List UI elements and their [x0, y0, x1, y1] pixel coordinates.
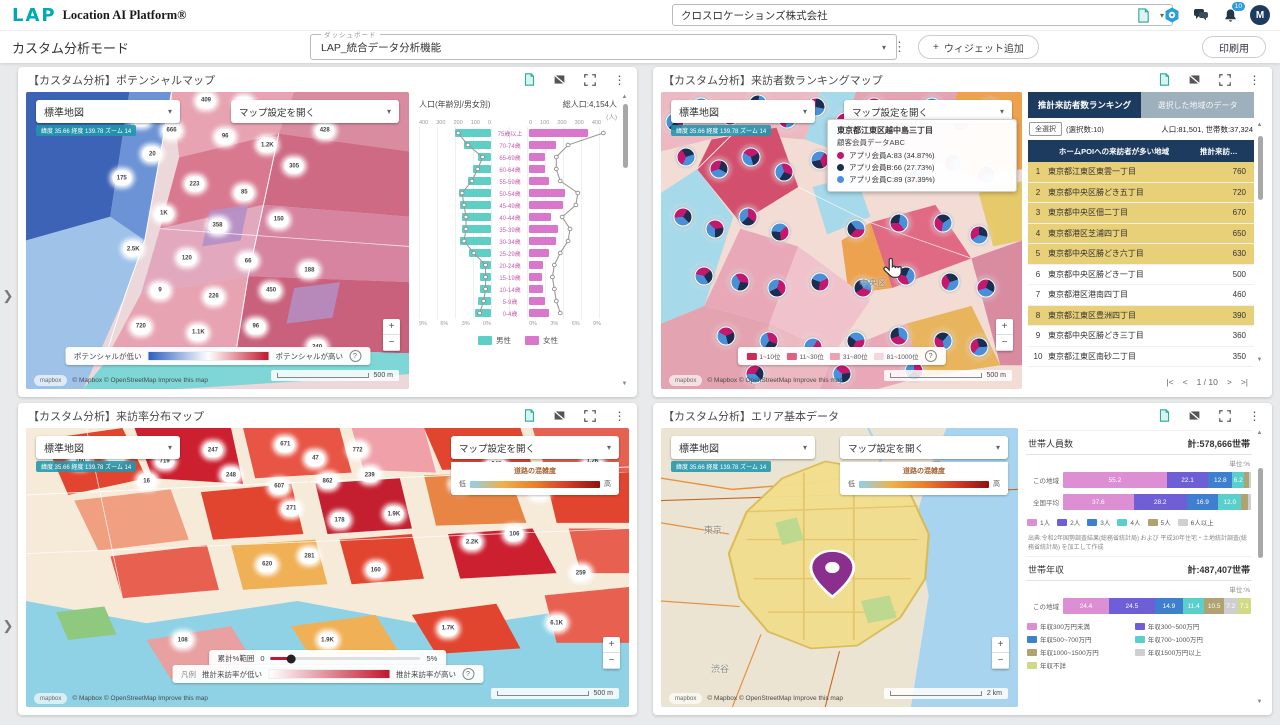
scroll-up-icon[interactable]: ▲	[1255, 122, 1264, 128]
bar-segment[interactable]: 22.1	[1167, 472, 1209, 488]
pie-marker[interactable]	[940, 273, 959, 292]
scroll-down-icon[interactable]: ▼	[620, 381, 629, 387]
household-income-legend: 年収300万円未満年収300~500万円年収500~700万円年収700~100…	[1026, 617, 1252, 674]
chevron-down-icon: ▾	[168, 107, 172, 116]
legend-item: 女性	[525, 335, 558, 346]
pie-marker[interactable]	[771, 222, 790, 241]
notification-badge: 10	[1232, 2, 1245, 11]
map-coords: 緯度 35.66 経度 139.78 ズーム 14	[671, 461, 771, 472]
pyramid-row: 65-69歳	[419, 151, 617, 163]
legend-item: 年収500~700万円	[1027, 634, 1128, 644]
selected-count: (選択数:10)	[1066, 124, 1104, 135]
info-icon[interactable]: ?	[462, 668, 474, 680]
scroll-up-icon[interactable]: ▲	[1255, 430, 1264, 436]
select-all-button[interactable]: 全選択	[1029, 122, 1062, 136]
panel-scrollbar[interactable]	[1258, 468, 1263, 558]
export-file-icon[interactable]	[522, 72, 537, 87]
ranking-table-header: ホームPOIへの来訪者が多い地域 推計来訪…	[1028, 140, 1254, 162]
last-page-button[interactable]: >|	[1241, 377, 1248, 387]
image-off-icon[interactable]	[552, 72, 567, 87]
map-value-bubble[interactable]: 20	[143, 147, 162, 162]
pie-marker[interactable]	[673, 207, 692, 226]
pyramid-row: 10-14歳	[419, 283, 617, 295]
company-select[interactable]: クロスロケーションズ株式会社 ▾	[672, 4, 1173, 26]
tab-selected-area-data[interactable]: 選択した地域のデータ	[1141, 92, 1254, 118]
mapbox-logo: mapbox	[34, 693, 67, 704]
pyramid-row: 50-54歳	[419, 187, 617, 199]
ranking-row[interactable]: 7東京都港区港南四丁目460	[1028, 285, 1254, 306]
zoom-out-button[interactable]: −	[992, 653, 1009, 669]
company-name: クロスロケーションズ株式会社	[681, 8, 828, 23]
map-style-select[interactable]: 標準地図▾	[36, 436, 180, 459]
panel-scrollbar[interactable]	[1258, 136, 1263, 200]
map-value-bubble[interactable]: 150	[269, 212, 288, 227]
stacked-bar-row: この地域24.424.514.911.410.57.27.1	[1026, 595, 1252, 617]
ranking-table: 1東京都江東区東雲一丁目7602東京都中央区勝どき五丁目7203東京都中央区佃二…	[1028, 162, 1254, 371]
fullscreen-icon[interactable]	[582, 72, 597, 87]
pie-marker[interactable]	[677, 148, 696, 167]
map-value-bubble[interactable]: 1.9K	[318, 633, 337, 648]
bar-segment[interactable]: 6.2	[1232, 472, 1244, 488]
map-value-bubble[interactable]: 671	[276, 437, 295, 452]
pie-marker[interactable]	[846, 219, 865, 238]
map-value-bubble[interactable]: 1K	[154, 206, 173, 221]
map-value-bubble[interactable]: 6.1K	[547, 616, 566, 631]
widget-menu-icon[interactable]: ⋮	[1247, 72, 1262, 87]
legend-item: 年収1500万円以上	[1135, 647, 1236, 657]
widget-title: 【カスタム分析】ポテンシャルマップ	[28, 72, 522, 88]
household-income-chart: この地域24.424.514.911.410.57.27.1	[1026, 595, 1252, 617]
legend-item: 年収300~500万円	[1135, 621, 1236, 631]
legend-item: 年収不詳	[1027, 660, 1128, 670]
pyramid-row: 45-49歳	[419, 199, 617, 211]
ranking-stats: 人口:81,501, 世帯数:37,324	[1161, 124, 1253, 135]
map-value-bubble[interactable]: 175	[112, 171, 131, 186]
bar-segment[interactable]: 12.0	[1218, 494, 1241, 510]
household-size-legend: 1人2人3人4人5人6人以上	[1026, 513, 1252, 531]
household-size-chart: この地域55.222.112.86.2全国平均37.628.216.912.0	[1026, 469, 1252, 513]
chevron-down-icon: ▾	[607, 443, 611, 452]
notifications-bell-icon[interactable]: 10	[1221, 6, 1239, 24]
population-pyramid: 75歳以上70-74歳65-69歳60-64歳55-59歳50-54歳45-49…	[419, 127, 617, 319]
chart-unit: (人)	[419, 111, 617, 120]
map-tooltip: 東京都江東区越中島三丁目 顧客会員データABC アプリ会員A:83 (34.87…	[827, 119, 1017, 192]
map-value-bubble[interactable]: 666	[162, 123, 181, 138]
expand-left-panel-bottom[interactable]: ❯	[0, 611, 16, 641]
pie-marker[interactable]	[706, 219, 725, 238]
fullscreen-icon[interactable]	[1217, 408, 1232, 423]
map-coords: 緯度 35.66 経度 139.78 ズーム 14	[36, 461, 136, 472]
map-attribution: mapbox © Mapbox © OpenStreetMap Improve …	[34, 375, 208, 386]
map-value-bubble[interactable]: 226	[204, 289, 223, 304]
population-chart-title: 人口(年齢別/男女別)	[419, 99, 491, 110]
pagination: |< < 1 / 10 > >|	[1028, 371, 1254, 389]
ranking-panel: 推計来訪者数ランキング 選択した地域のデータ 全選択 (選択数:10) 人口:8…	[1028, 92, 1264, 389]
ranking-row[interactable]: 1東京都江東区東雲一丁目760	[1028, 162, 1254, 183]
stacked-bar-row: この地域55.222.112.86.2	[1026, 469, 1252, 491]
household-income-header: 世帯年収 計:487,407世帯	[1026, 556, 1252, 581]
legend-item: 6人以上	[1178, 517, 1214, 527]
document-export-icon[interactable]	[1134, 6, 1152, 24]
pyramid-row: 55-59歳	[419, 175, 617, 187]
pie-marker[interactable]	[716, 326, 735, 345]
congestion-gradient-bar	[859, 481, 989, 488]
map-value-bubble[interactable]: 305	[285, 159, 304, 174]
first-page-button[interactable]: |<	[1166, 377, 1173, 387]
zoom-in-button[interactable]: +	[992, 637, 1009, 653]
chevron-down-icon: ▾	[1000, 107, 1004, 116]
map-style-select[interactable]: 標準地図▾	[671, 100, 815, 123]
avatar[interactable]: M	[1250, 5, 1270, 25]
legend-item: 男性	[478, 335, 511, 346]
map-attribution: mapbox © Mapbox © OpenStreetMap Improve …	[669, 693, 843, 704]
rank-legend: 1~10位11~30位31~80位81~1000位?	[737, 347, 945, 365]
pie-marker[interactable]	[969, 225, 988, 244]
export-file-icon[interactable]	[1157, 72, 1172, 87]
legend-item: 2人	[1057, 517, 1080, 527]
pyramid-row: 25-29歳	[419, 247, 617, 259]
area-map[interactable]: 東京 渋谷 標準地図▾ 緯度 35.66 経度 139.78 ズーム 14 マッ…	[661, 428, 1018, 707]
chart-unit: 単位:%	[1026, 581, 1252, 595]
ranking-tabs: 推計来訪者数ランキング 選択した地域のデータ	[1028, 92, 1254, 118]
widget-title: 【カスタム分析】エリア基本データ	[663, 408, 1157, 424]
pyramid-row: 60-64歳	[419, 163, 617, 175]
top-bar: LAP Location AI Platform® クロスロケーションズ株式会社…	[0, 0, 1280, 31]
pyramid-x-axis: 40030020010000100200300400	[419, 120, 617, 126]
bar-segment[interactable]: 55.2	[1063, 472, 1167, 488]
slider-knob[interactable]	[287, 654, 296, 663]
pyramid-percent-axis: 9%6%3%0%0%3%6%9%	[419, 321, 617, 327]
pie-marker[interactable]	[890, 326, 909, 345]
map-value-bubble[interactable]: 409	[197, 93, 216, 108]
bar-segment[interactable]: 24.4	[1063, 598, 1109, 614]
print-button[interactable]: 印刷用	[1202, 36, 1266, 58]
dashboard-select[interactable]: ダッシュボード LAP_統合データ分析機能 ▾	[310, 34, 897, 60]
map-scale: 2 km	[884, 688, 1008, 699]
map-value-bubble[interactable]: 223	[185, 177, 204, 192]
chart-unit: 単位:%	[1026, 455, 1252, 469]
scroll-down-icon[interactable]: ▼	[1255, 699, 1264, 705]
bar-segment[interactable]: 10.5	[1204, 598, 1224, 614]
map-value-bubble[interactable]: 2.5K	[124, 242, 143, 257]
pyramid-row: 20-24歳	[419, 259, 617, 271]
map-coords: 緯度 35.66 経度 139.78 ズーム 14	[36, 125, 136, 136]
map-value-bubble[interactable]: 450	[262, 283, 281, 298]
visitrate-legend: 凡例 推計来訪率が低い 推計来訪率が高い ?	[172, 665, 483, 683]
chevron-down-icon: ▾	[996, 443, 1000, 452]
widget-grid: ❯ ❯ 【カスタム分析】ポテンシャルマップ ⋮	[0, 63, 1280, 725]
fullscreen-icon[interactable]	[1217, 72, 1232, 87]
map-value-bubble[interactable]: 1.1K	[189, 325, 208, 340]
chevron-down-icon: ▾	[882, 43, 886, 52]
potential-legend: ポテンシャルが低い ポテンシャルが高い ?	[65, 347, 370, 365]
congestion-legend: 道路の混雑度 低 高	[451, 462, 619, 495]
widget-title: 【カスタム分析】来訪率分布マップ	[28, 408, 522, 424]
map-value-bubble[interactable]: 96	[246, 319, 265, 334]
settings-gear-icon[interactable]	[1163, 6, 1181, 24]
map-settings-select[interactable]: マップ設定を開く▾	[451, 436, 619, 459]
map-value-bubble[interactable]: 1.2K	[258, 138, 277, 153]
bar-segment[interactable]	[1249, 472, 1251, 488]
pie-marker[interactable]	[709, 160, 728, 179]
widget-header: 【カスタム分析】ポテンシャルマップ ⋮	[18, 67, 637, 92]
pyramid-row: 70-74歳	[419, 139, 617, 151]
next-page-button[interactable]: >	[1227, 377, 1232, 387]
info-icon[interactable]: ?	[349, 350, 361, 362]
map-place-label: 東京	[704, 523, 722, 536]
image-off-icon[interactable]	[1187, 408, 1202, 423]
ranking-row[interactable]: 3東京都中央区佃二丁目670	[1028, 203, 1254, 224]
mapbox-logo: mapbox	[669, 693, 702, 704]
tooltip-series-row: アプリ会員C:89 (37.39%)	[837, 174, 1007, 186]
map-value-bubble[interactable]: 16	[137, 474, 156, 489]
pyramid-row: 30-34歳	[419, 235, 617, 247]
ranking-row[interactable]: 5東京都中央区勝どき六丁目630	[1028, 244, 1254, 265]
legend-item: 4人	[1117, 517, 1140, 527]
export-file-icon[interactable]	[1157, 408, 1172, 423]
map-value-bubble[interactable]: 862	[318, 474, 337, 489]
widget-header: 【カスタム分析】来訪率分布マップ ⋮	[18, 403, 637, 428]
pie-marker[interactable]	[738, 207, 757, 226]
image-off-icon[interactable]	[552, 408, 567, 423]
widget-header: 【カスタム分析】来訪者数ランキングマップ ⋮	[653, 67, 1272, 92]
map-scale: 500 m	[884, 370, 1012, 381]
bar-segment[interactable]: 28.2	[1134, 494, 1187, 510]
tab-ranking[interactable]: 推計来訪者数ランキング	[1028, 92, 1141, 118]
map-value-bubble[interactable]: 188	[300, 263, 319, 278]
widget-potential-map: 【カスタム分析】ポテンシャルマップ ⋮	[18, 67, 637, 397]
map-value-bubble[interactable]: 607	[270, 479, 289, 494]
dashboard-menu-icon[interactable]: ⋮	[893, 39, 906, 55]
map-value-bubble[interactable]: 120	[177, 251, 196, 266]
pyramid-row: 15-19歳	[419, 271, 617, 283]
widget-menu-icon[interactable]: ⋮	[1247, 408, 1262, 423]
chat-icon[interactable]	[1192, 6, 1210, 24]
congestion-legend: 道路の混雑度 低 高	[840, 462, 1008, 495]
map-value-bubble[interactable]: 358	[208, 218, 227, 233]
widget-ranking-map: 【カスタム分析】来訪者数ランキングマップ ⋮	[653, 67, 1272, 397]
map-value-bubble[interactable]: 9	[151, 283, 170, 298]
map-value-bubble[interactable]: 271	[282, 501, 301, 516]
map-settings-select[interactable]: マップ設定を開く▾	[231, 100, 399, 123]
map-value-bubble[interactable]: 66	[239, 254, 258, 269]
pyramid-row: 40-44歳	[419, 211, 617, 223]
ranking-info-row: 全選択 (選択数:10) 人口:81,501, 世帯数:37,324	[1028, 118, 1254, 140]
zoom-in-button[interactable]: +	[996, 319, 1013, 335]
pie-marker[interactable]	[774, 163, 793, 182]
prev-page-button[interactable]: <	[1183, 377, 1188, 387]
rank-legend-item: 81~1000位	[874, 351, 919, 361]
map-value-bubble[interactable]: 720	[131, 319, 150, 334]
bar-segment[interactable]: 7.1	[1238, 598, 1251, 614]
map-place-label: 渋谷	[711, 662, 729, 675]
map-value-bubble[interactable]: 620	[258, 557, 277, 572]
map-value-bubble[interactable]: 259	[571, 566, 590, 581]
map-value-bubble[interactable]: 160	[366, 563, 385, 578]
export-file-icon[interactable]	[522, 408, 537, 423]
congestion-gradient-bar	[470, 481, 600, 488]
pyramid-legend: 男性女性	[419, 335, 617, 346]
pyramid-row: 75歳以上	[419, 127, 617, 139]
chevron-down-icon: ▾	[803, 443, 807, 452]
area-data-panel: 世帯人員数 計:578,666世帯 単位:% この地域55.222.112.86…	[1024, 428, 1264, 707]
pie-marker[interactable]	[731, 273, 750, 292]
map-scale: 500 m	[271, 370, 399, 381]
ranking-row[interactable]: 8東京都江東区豊洲四丁目390	[1028, 306, 1254, 327]
ranking-row[interactable]: 2東京都中央区勝どき五丁目720	[1028, 183, 1254, 204]
zoom-out-button[interactable]: −	[996, 335, 1013, 351]
legend-item: 年収300万円未満	[1027, 621, 1128, 631]
ranking-row[interactable]: 6東京都中央区勝どき一丁目500	[1028, 265, 1254, 286]
image-off-icon[interactable]	[1187, 72, 1202, 87]
slider-track[interactable]	[271, 657, 421, 660]
map-value-bubble[interactable]: 178	[330, 513, 349, 528]
brand-name: Location AI Platform®	[63, 8, 187, 23]
map-value-bubble[interactable]: 281	[300, 549, 319, 564]
info-icon[interactable]: ?	[925, 350, 937, 362]
zoom-in-button[interactable]: +	[603, 637, 620, 653]
visitrate-gradient-bar	[268, 669, 390, 679]
legend-item: 年収700~1000万円	[1135, 634, 1236, 644]
tooltip-series-row: アプリ会員A:83 (34.87%)	[837, 150, 1007, 162]
map-value-bubble[interactable]: 47	[306, 451, 325, 466]
widget-menu-icon[interactable]: ⋮	[612, 72, 627, 87]
rank-legend-item: 31~80位	[830, 351, 868, 361]
widget-header: 【カスタム分析】エリア基本データ ⋮	[653, 403, 1272, 428]
source-note: 出典:令和2年国勢調査結果(総務省統計局) および 平成30年住宅・土地統計調査…	[1026, 531, 1252, 556]
widget-area-data: 【カスタム分析】エリア基本データ ⋮	[653, 403, 1272, 715]
top-icon-group: 10 M	[1134, 5, 1270, 25]
map-coords: 緯度 35.66 経度 139.78 ズーム 14	[671, 125, 771, 136]
chevron-down-icon: ▾	[803, 107, 807, 116]
mapbox-logo: mapbox	[669, 375, 702, 386]
tooltip-series-row: アプリ会員B:66 (27.73%)	[837, 162, 1007, 174]
map-attribution: mapbox © Mapbox © OpenStreetMap Improve …	[669, 375, 843, 386]
panel-scrollbar[interactable]	[623, 104, 628, 168]
map-style-select[interactable]: 標準地図▾	[36, 100, 180, 123]
bubble-layer: 4095.2K4866620428961.2K305175223851K3581…	[26, 92, 409, 389]
pie-marker[interactable]	[969, 338, 988, 357]
map-value-bubble[interactable]: 247	[203, 443, 222, 458]
household-size-header: 世帯人員数 計:578,666世帯	[1026, 430, 1252, 455]
pie-marker[interactable]	[767, 279, 786, 298]
page-indicator: 1 / 10	[1197, 377, 1218, 387]
pie-marker[interactable]	[890, 213, 909, 232]
bar-segment[interactable]	[1241, 494, 1248, 510]
bar-segment[interactable]: 7.2	[1224, 598, 1238, 614]
map-value-bubble[interactable]: 108	[173, 633, 192, 648]
map-value-bubble[interactable]: 106	[505, 527, 524, 542]
potential-map[interactable]: 4095.2K4866620428961.2K305175223851K3581…	[26, 92, 409, 389]
bar-segment[interactable]: 24.5	[1109, 598, 1155, 614]
legend-item: 5人	[1148, 517, 1171, 527]
population-panel: 人口(年齢別/男女別) 総人口:4,154人 (人) 4003002001000…	[415, 92, 629, 389]
map-value-bubble[interactable]: 2.2K	[463, 535, 482, 550]
widget-title: 【カスタム分析】来訪者数ランキングマップ	[663, 72, 1157, 88]
zoom-in-button[interactable]: +	[383, 319, 400, 335]
bar-segment[interactable]: 11.4	[1183, 598, 1204, 614]
dashboard-select-value: LAP_統合データ分析機能	[321, 40, 441, 55]
map-value-bubble[interactable]: 239	[360, 468, 379, 483]
scroll-down-icon[interactable]: ▼	[1255, 357, 1264, 363]
mapbox-logo: mapbox	[34, 375, 67, 386]
legend-item: 3人	[1087, 517, 1110, 527]
map-settings-select[interactable]: マップ設定を開く▾	[840, 436, 1008, 459]
map-value-bubble[interactable]: 248	[222, 468, 241, 483]
pie-marker[interactable]	[810, 273, 829, 292]
map-value-bubble[interactable]: 85	[235, 185, 254, 200]
scroll-up-icon[interactable]: ▲	[620, 94, 629, 100]
map-value-bubble[interactable]: 96	[216, 129, 235, 144]
plus-icon: +	[933, 42, 939, 53]
fullscreen-icon[interactable]	[582, 408, 597, 423]
map-attribution: mapbox © Mapbox © OpenStreetMap Improve …	[34, 693, 208, 704]
pyramid-row: 5-9歳	[419, 295, 617, 307]
map-value-bubble[interactable]: 1.7K	[439, 621, 458, 636]
ranking-row[interactable]: 10東京都江東区南砂二丁目350	[1028, 347, 1254, 368]
map-value-bubble[interactable]: 772	[348, 443, 367, 458]
rank-legend-item: 1~10位	[746, 351, 780, 361]
ranking-row[interactable]: 9東京都中央区勝どき三丁目360	[1028, 326, 1254, 347]
ranking-map[interactable]: 中央区 標準地図▾ 緯度 35.66 経度 139.78 ズーム 14 マップ設…	[661, 92, 1022, 389]
rank-legend-item: 11~30位	[787, 351, 824, 361]
pie-marker[interactable]	[933, 213, 952, 232]
zoom-out-button[interactable]: −	[383, 335, 400, 351]
chevron-down-icon: ▾	[168, 443, 172, 452]
stacked-bar-row: 全国平均37.628.216.912.0	[1026, 491, 1252, 513]
pyramid-row: 0-4歳	[419, 307, 617, 319]
map-style-select[interactable]: 標準地図▾	[671, 436, 815, 459]
bar-segment[interactable]: 16.9	[1187, 494, 1219, 510]
population-total: 総人口:4,154人	[563, 99, 617, 110]
widget-menu-icon[interactable]: ⋮	[612, 408, 627, 423]
potential-gradient-bar	[148, 351, 270, 361]
bar-segment[interactable]: 12.8	[1208, 472, 1232, 488]
pie-marker[interactable]	[695, 267, 714, 286]
bar-segment[interactable]: 37.6	[1063, 494, 1134, 510]
ranking-row[interactable]: 4東京都港区芝浦四丁目650	[1028, 224, 1254, 245]
pie-marker[interactable]	[976, 279, 995, 298]
mouse-cursor	[881, 258, 903, 287]
pie-marker[interactable]	[742, 148, 761, 167]
map-scale: 500 m	[491, 688, 619, 699]
chevron-down-icon: ▾	[387, 107, 391, 116]
bar-segment[interactable]	[1248, 494, 1251, 510]
mode-title: カスタム分析モード	[12, 38, 129, 57]
map-value-bubble[interactable]: 428	[315, 123, 334, 138]
pyramid-row: 35-39歳	[419, 223, 617, 235]
legend-item: 1人	[1027, 517, 1050, 527]
legend-item: 年収1000~1500万円	[1027, 647, 1128, 657]
add-widget-button[interactable]: + ウィジェット追加	[918, 35, 1039, 59]
dashboard-toolbar: カスタム分析モード ダッシュボード LAP_統合データ分析機能 ▾ ⋮ + ウィ…	[0, 31, 1280, 63]
zoom-out-button[interactable]: −	[603, 653, 620, 669]
bar-segment[interactable]: 14.9	[1155, 598, 1183, 614]
visitrate-map[interactable]: 1601907192476714777216248607862239271178…	[26, 428, 629, 707]
map-value-bubble[interactable]: 1.9K	[384, 507, 403, 522]
app-logo: LAP	[12, 5, 57, 26]
widget-visitrate-map: 【カスタム分析】来訪率分布マップ ⋮	[18, 403, 637, 715]
expand-left-panel-top[interactable]: ❯	[0, 281, 16, 311]
